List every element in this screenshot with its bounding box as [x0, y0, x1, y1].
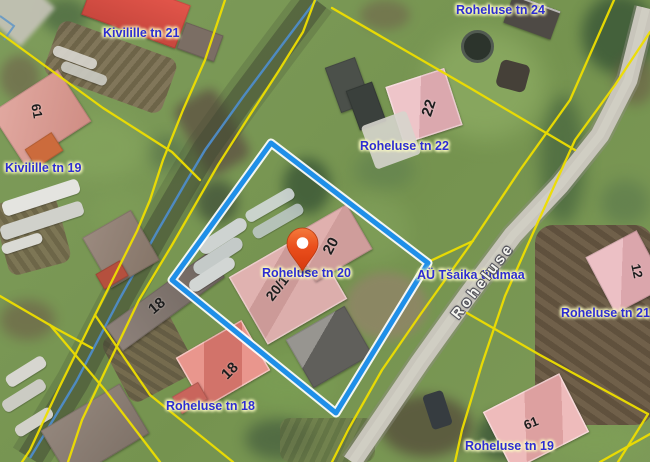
map-canvas[interactable]: 61 18 18 20/1 20 22 12 61 Kivilille tn 2… — [0, 0, 650, 462]
address-label: Roheluse tn 18 — [166, 399, 255, 413]
address-label: Kivilille tn 21 — [103, 26, 179, 40]
location-marker-icon[interactable] — [270, 205, 336, 277]
address-label: Roheluse tn 22 — [360, 139, 449, 153]
address-label: Roheluse tn 19 — [465, 439, 554, 453]
address-label: Kivilille tn 19 — [5, 161, 81, 175]
address-label: Roheluse tn 21 — [561, 306, 650, 320]
address-label: AÜ Tšaika üldmaa — [417, 268, 525, 282]
address-label: Roheluse tn 24 — [456, 3, 545, 17]
